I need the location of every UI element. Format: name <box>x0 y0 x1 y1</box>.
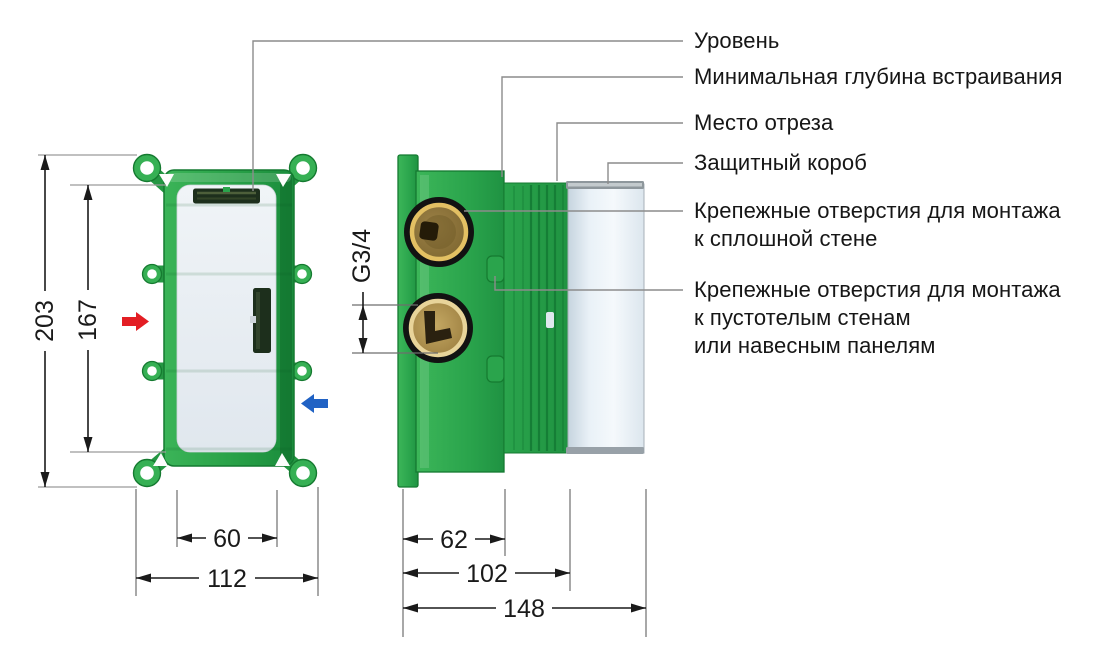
label-min-depth: Минимальная глубина встраивания <box>694 63 1063 91</box>
label-cut-place-text: Место отреза <box>694 109 833 137</box>
label-protective-box: Защитный короб <box>694 149 867 177</box>
side-mounting-lug-hole <box>147 269 157 279</box>
dim-text-112: 112 <box>207 565 247 593</box>
dim-text-62: 62 <box>440 526 468 554</box>
leader-cut-place <box>557 123 683 181</box>
dim-front-total-height: 203 <box>31 155 59 487</box>
label-solid-wall-line2: к сплошной стене <box>694 225 1061 253</box>
mounting-lug-hole <box>140 466 154 480</box>
dim-text-60: 60 <box>213 525 241 553</box>
mounting-lug-hole <box>296 161 310 175</box>
retaining-clip <box>487 356 504 382</box>
leader-level <box>253 41 683 191</box>
label-hollow-wall-mount: Крепежные отверстия для монтажа к пустот… <box>694 276 1061 360</box>
protective-box <box>568 184 644 453</box>
leader-min-depth <box>502 77 683 177</box>
dim-text-203: 203 <box>31 300 59 342</box>
label-solid-wall-mount: Крепежные отверстия для монтажа к сплошн… <box>694 197 1061 253</box>
dim-text-167: 167 <box>74 299 102 341</box>
hot-water-arrow-icon <box>122 312 149 331</box>
dim-front-total-width: 112 <box>136 565 318 593</box>
dim-front-face-height: 167 <box>74 185 102 452</box>
label-protective-box-text: Защитный короб <box>694 149 867 177</box>
installation-diagram: 203 167 60 112 <box>0 0 1116 666</box>
label-level: Уровень <box>694 27 779 55</box>
label-solid-wall-line1: Крепежные отверстия для монтажа <box>694 197 1061 225</box>
label-hollow-wall-line1: Крепежные отверстия для монтажа <box>694 276 1061 304</box>
side-mounting-lug-hole <box>297 269 307 279</box>
body-shadow-band <box>280 174 292 462</box>
protective-box-bottom <box>566 447 644 454</box>
service-slot <box>250 288 271 353</box>
dim-front-face-width: 60 <box>177 525 277 553</box>
side-mounting-lug-hole <box>147 366 157 376</box>
dim-text-g34: G3/4 <box>348 229 376 283</box>
body-highlight <box>167 173 291 182</box>
dim-side-body-depth: 62 <box>403 526 505 554</box>
sleeve-slot <box>546 312 554 328</box>
label-hollow-wall-line2: к пустотелым стенам <box>694 304 1061 332</box>
mounting-lug-hole <box>140 161 154 175</box>
side-mounting-lug-hole <box>297 366 307 376</box>
water-port-top <box>404 197 474 267</box>
protective-box-cap-highlight <box>568 183 642 187</box>
side-view <box>398 155 644 487</box>
dim-text-102: 102 <box>466 560 508 588</box>
leader-protective-box <box>608 163 683 184</box>
label-cut-place: Место отреза <box>694 109 833 137</box>
dim-side-total-depth: 148 <box>403 595 646 623</box>
mounting-lug-hole <box>296 466 310 480</box>
cold-water-arrow-icon <box>301 394 328 413</box>
front-view <box>122 155 328 487</box>
dim-thread-size: G3/4 <box>348 220 376 353</box>
dim-side-mid-depth: 102 <box>403 560 570 588</box>
label-min-depth-text: Минимальная глубина встраивания <box>694 63 1063 91</box>
dim-text-148: 148 <box>503 595 545 623</box>
label-level-text: Уровень <box>694 27 779 55</box>
level-vial <box>193 187 260 204</box>
label-hollow-wall-line3: или навесным панелям <box>694 332 1061 360</box>
